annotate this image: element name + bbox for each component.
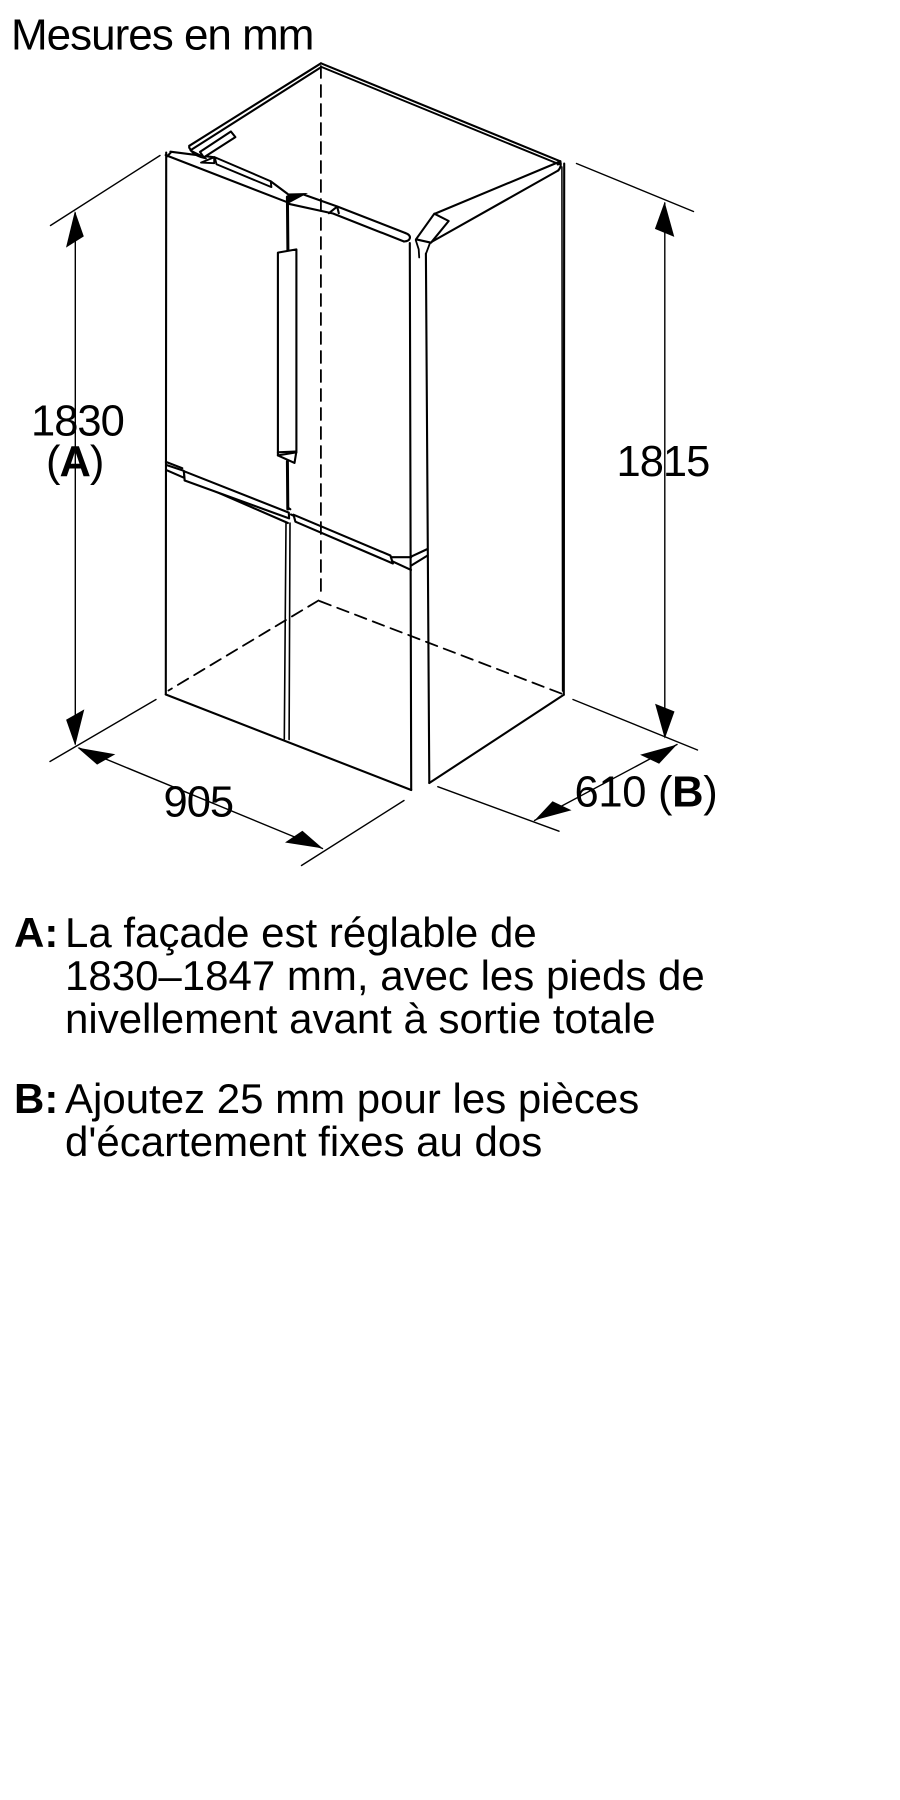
svg-text:nivellement avant à sortie tot: nivellement avant à sortie totale: [65, 995, 656, 1042]
svg-text:A:La façade est réglable de: A:La façade est réglable de: [14, 909, 537, 956]
svg-text:1830–1847 mm, avec les pieds d: 1830–1847 mm, avec les pieds de: [65, 952, 705, 999]
svg-text:610 (B): 610 (B): [575, 769, 718, 817]
svg-text:905: 905: [164, 779, 234, 827]
svg-text:Mesures en mm: Mesures en mm: [11, 11, 313, 60]
svg-text:1815: 1815: [617, 438, 710, 486]
svg-text:B:Ajoutez 25 mm pour les pièce: B:Ajoutez 25 mm pour les pièces: [14, 1075, 639, 1122]
svg-text:d'écartement fixes au dos: d'écartement fixes au dos: [65, 1118, 542, 1165]
svg-text:(A): (A): [46, 438, 103, 486]
